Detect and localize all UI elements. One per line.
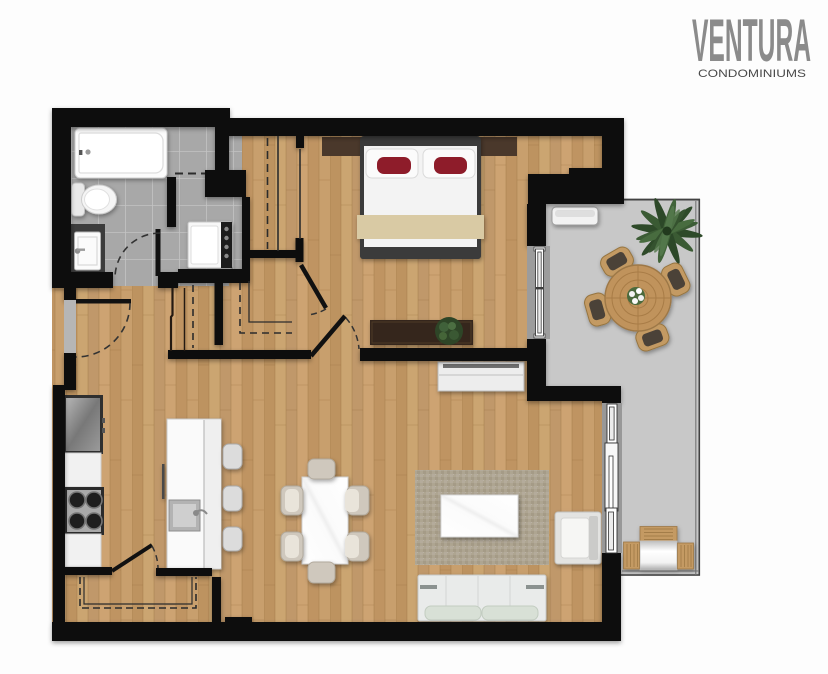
- svg-text:CONDOMINIUMS: CONDOMINIUMS: [698, 68, 806, 80]
- svg-text:VENTURA: VENTURA: [692, 7, 811, 74]
